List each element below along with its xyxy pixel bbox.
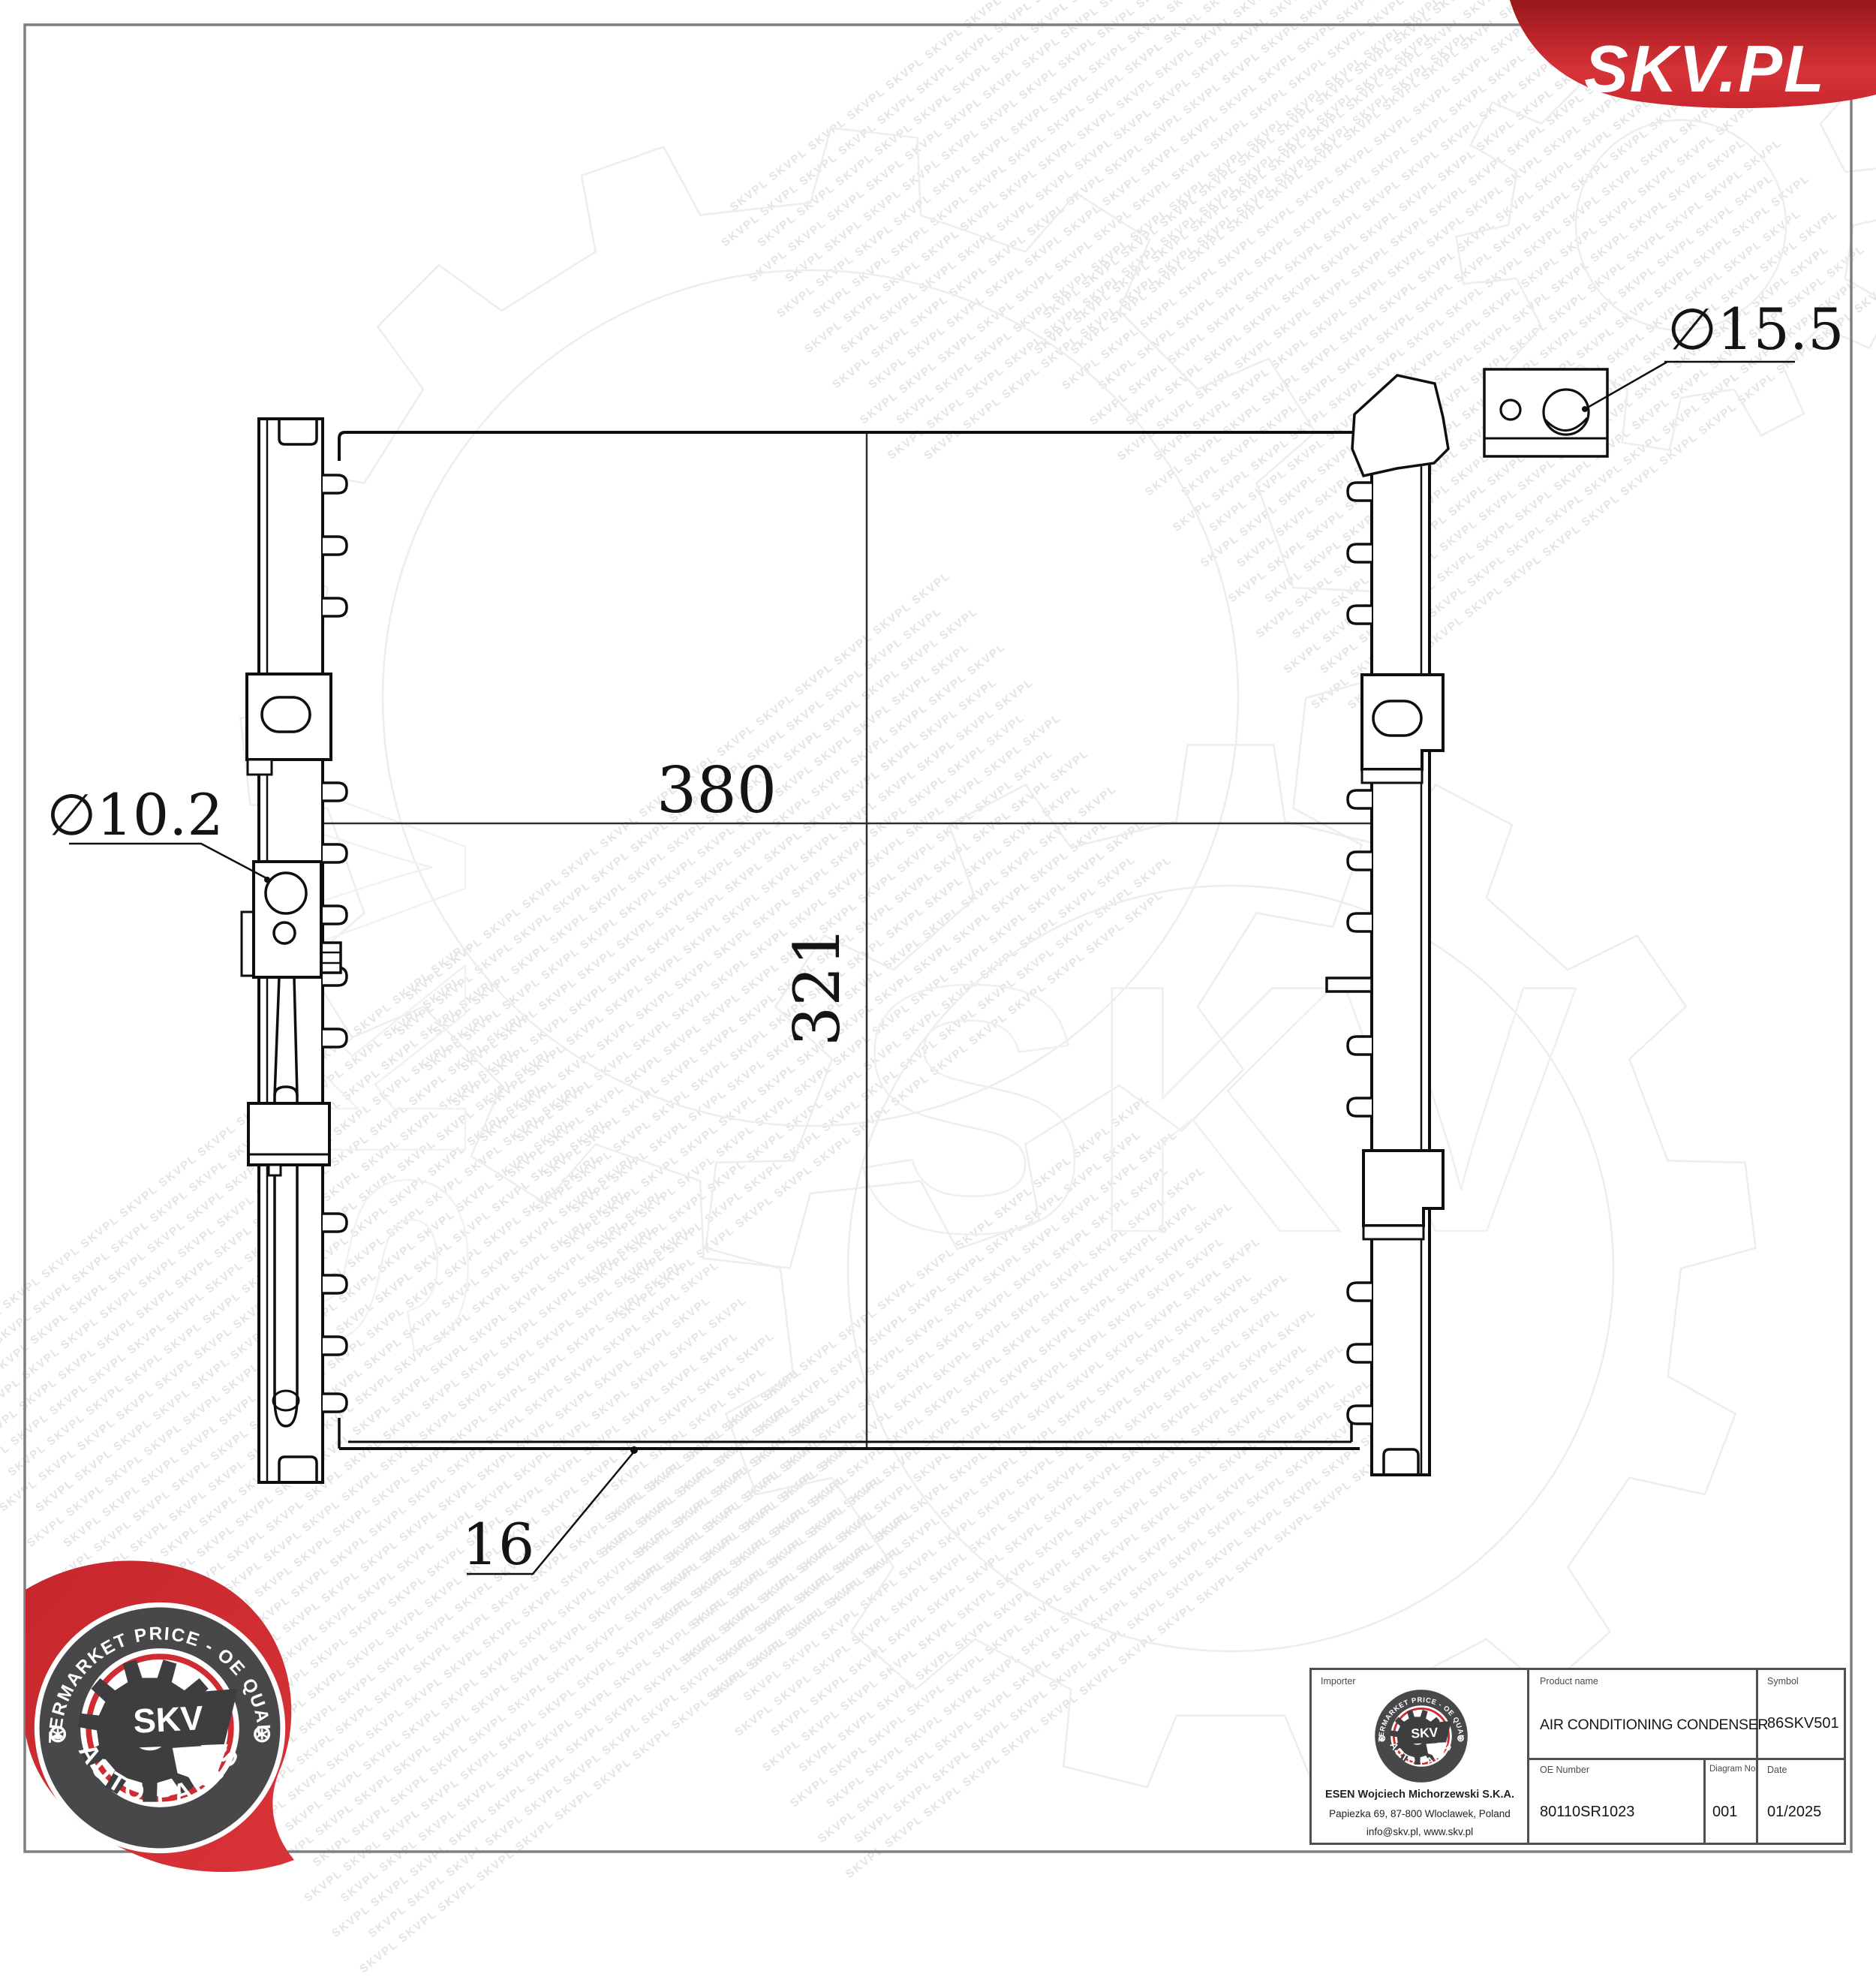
diagram-no-value: 001 — [1712, 1804, 1737, 1821]
port-hole-large — [266, 873, 306, 913]
detail-hole-small — [1501, 400, 1520, 420]
break-flag — [1352, 375, 1448, 476]
importer-address: Papiezka 69, 87-800 Wloclawek, Poland — [1315, 1808, 1525, 1819]
right-rail-bottom-cap — [1384, 1449, 1418, 1473]
gear-watermark-hub — [1576, 120, 1786, 330]
detail-hole-large — [1544, 390, 1589, 435]
gear-watermark — [241, 128, 1381, 1268]
fin-tooth — [1348, 1406, 1372, 1424]
watermark-text: SKVPL SKVPL SKVPL SKVPL SKVPL SKVPL SKVP… — [725, 6, 1181, 466]
gear-watermark — [706, 745, 1756, 1787]
logo-red-blob — [26, 1560, 294, 1872]
catalog-page: { "brand": { "banner_text": "SKV.PL", "r… — [0, 0, 1876, 1876]
product-name-label: Product name — [1540, 1676, 1598, 1687]
tube-end — [273, 1391, 299, 1410]
dim-hole-left: ∅10.2 — [47, 781, 223, 848]
fin-tooth — [323, 844, 347, 862]
dim-hole-right: ∅15.5 — [1667, 296, 1844, 363]
drier-tube-neck — [275, 977, 297, 1096]
block-tab — [242, 912, 254, 976]
fin-tooth — [1348, 606, 1372, 624]
left-rail-bottom-cap — [279, 1457, 317, 1481]
banner-logo-text: SKV.PL — [1584, 32, 1826, 106]
fin-tooth — [1348, 852, 1372, 870]
fin-tooth — [323, 783, 347, 801]
fin-tooth — [1348, 790, 1372, 808]
fin-tooth — [323, 537, 347, 555]
date-value: 01/2025 — [1767, 1804, 1821, 1821]
mount-bracket — [248, 1103, 329, 1165]
gear-watermark-layer — [241, 0, 1876, 1787]
dim-width: 380 — [657, 754, 777, 827]
gear-watermark-hub — [848, 886, 1613, 1651]
fin-tooth — [1348, 1037, 1372, 1055]
watermark-text-patch: SKVPL SKVPL SKVPL SKVPL SKVPL SKVPL SKVP… — [90, 1088, 705, 1764]
importer-badge-logo — [1370, 1687, 1472, 1786]
technical-drawing-canvas: SKV AFTERMARKET PRICE - OE QUALITY AUTO … — [0, 0, 1876, 1876]
banner-shape — [1510, 0, 1876, 108]
watermark-text-patch: SKVPL SKVPL SKVPL SKVPL SKVPL SKVPL SKVP… — [660, 1238, 1396, 1599]
fin-tooth — [323, 1029, 347, 1047]
detail-box — [1484, 369, 1607, 456]
watermark-text-layer: SKVPL SKVPL SKVPL SKVPL SKVPL SKVPL SKVP… — [0, 0, 1876, 1876]
title-block-table: Importer ESEN Wojciech Michorzewski S.K.… — [1309, 1668, 1846, 1845]
left-header-rail — [259, 419, 323, 1482]
fin-tooth — [323, 1275, 347, 1293]
condenser-drawing — [69, 362, 1795, 1574]
mount-bracket — [1363, 1151, 1443, 1226]
watermark-text-patch: SKVPL SKVPL SKVPL SKVPL SKVPL SKVPL SKVP… — [795, 68, 1111, 315]
right-header-rail — [1372, 439, 1430, 1475]
gear-watermark-hub — [383, 270, 1238, 1126]
pipe-fitting — [321, 943, 341, 973]
fin-tooth — [323, 906, 347, 924]
watermark-text-patch: SKVPL SKVPL SKVPL SKVPL SKVPL SKVPL SKVP… — [465, 773, 1028, 1088]
dimension-texts: 380 321 ∅10.2 ∅15.5 16 — [47, 296, 1844, 1578]
left-rail-top-cap — [279, 420, 317, 444]
fin-tooth — [323, 1394, 347, 1412]
drier-tube-dome — [275, 1087, 297, 1120]
watermark-text: SKVPL SKVPL SKVPL SKVPL SKVPL SKVPL SKVP… — [1038, 0, 1876, 716]
watermark-text: SKVPL SKVPL SKVPL SKVPL SKVPL SKVPL SKVP… — [0, 980, 876, 1963]
fin-tooth — [1348, 1344, 1372, 1362]
dim-height: 321 — [780, 926, 854, 1046]
fin-tooth — [1348, 913, 1372, 931]
dim-thickness: 16 — [462, 1511, 535, 1578]
fin-tooth — [323, 967, 347, 985]
gear-watermark — [1456, 0, 1876, 450]
fin-tooth — [1348, 1098, 1372, 1116]
importer-contact: info@skv.pl, www.skv.pl — [1315, 1826, 1525, 1837]
watermark-text-patch: SKVPL SKVPL SKVPL SKVPL SKVPL SKVPL SKVP… — [1126, 45, 1801, 465]
mount-bracket — [247, 674, 331, 760]
importer-company: ESEN Wojciech Michorzewski S.K.A. — [1315, 1789, 1525, 1801]
ghost-text-layer: SKV SKV — [207, 771, 1580, 1359]
fin-teeth — [323, 475, 1372, 1424]
right-rail-top-cap — [1384, 441, 1418, 465]
ghost-skv-text-rotated: SKV — [207, 771, 526, 1359]
fin-tooth — [1348, 544, 1372, 562]
port-hole-small — [274, 922, 295, 943]
diagram-no-label: Diagram No — [1709, 1765, 1755, 1774]
brand-banner: SKV.PL — [1510, 0, 1876, 108]
long-tab — [1327, 978, 1372, 992]
product-name-value: AIR CONDITIONING CONDENSER — [1540, 1717, 1768, 1734]
oe-number-label: OE Number — [1540, 1765, 1589, 1775]
importer-label: Importer — [1321, 1676, 1356, 1687]
core-top-edge — [339, 432, 1385, 461]
watermark-text: SKVPL SKVPL SKVPL SKVPL SKVPL SKVPL SKVP… — [400, 642, 1093, 1308]
oe-number-value: 80110SR1023 — [1540, 1804, 1634, 1821]
ghost-skv-text: SKV — [853, 912, 1580, 1306]
bracket-slot — [262, 697, 310, 732]
dimension-leaders — [69, 362, 1795, 1574]
drier-tube — [275, 1120, 297, 1398]
fin-tooth — [323, 1214, 347, 1232]
fin-tooth — [323, 475, 347, 493]
fin-tooth — [323, 1337, 347, 1355]
fin-tooth — [1348, 1283, 1372, 1301]
bracket-slot — [1373, 701, 1421, 736]
mount-bracket — [1362, 675, 1443, 769]
fin-tooth — [323, 598, 347, 616]
corner-logo — [26, 1560, 294, 1872]
connector-block — [254, 862, 321, 977]
date-label: Date — [1767, 1765, 1787, 1775]
symbol-value: 86SKV501 — [1767, 1715, 1839, 1732]
symbol-label: Symbol — [1767, 1676, 1799, 1687]
page-border — [25, 25, 1851, 1852]
fin-tooth — [1348, 483, 1372, 501]
